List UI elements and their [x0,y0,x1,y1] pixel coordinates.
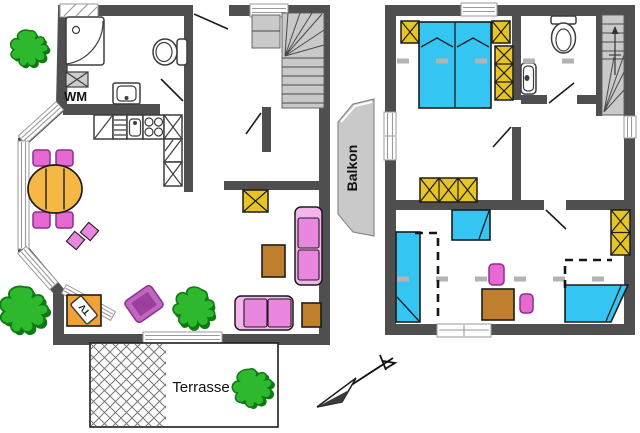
wardrobe-small [611,210,630,255]
side-table [302,303,321,327]
window-bottom-living [143,332,222,343]
wall-hall-living [224,181,325,190]
coffee-table [262,245,285,277]
wall-stairwell [596,15,602,116]
washbasin-upper [521,63,536,94]
window-top-left [60,4,98,17]
stool [489,264,504,285]
toilet-upper [551,16,576,53]
plant [11,30,51,68]
wall-hall-stub [262,107,271,152]
cot [452,210,490,240]
terrace-hatch [91,344,166,426]
north-arrow [317,355,395,407]
table-upper [482,289,514,320]
stool [520,294,533,313]
ground-floor-plan: WM [18,4,330,345]
dining-chair [33,150,50,166]
plant [0,286,51,335]
wall-mid-right [566,200,624,210]
staircase-upper [602,15,624,115]
floorplan-image: WM [0,0,640,433]
kitchen-sink [127,115,143,139]
upper-floor-plan [384,3,636,337]
dining-chair [33,212,50,228]
corner-shower [66,17,104,65]
window-right-upper [624,116,636,138]
sofa-horizontal [235,296,293,330]
washing-machine-label: WM [64,89,87,104]
wall-bath-bottom [63,104,160,115]
stove [143,115,164,139]
nightstand-right [492,21,510,43]
bay-window-left [18,141,29,249]
tv-stand: TV [67,295,101,326]
balcony-door [384,112,396,160]
dining-chair [56,150,73,166]
wall-bedroom-lower [512,127,521,200]
sofa-vertical [295,207,322,285]
dining-chair [56,212,73,228]
wardrobe-wide [420,178,477,202]
window-top-upper [461,3,497,16]
bathroom-sink [113,83,140,104]
wall-bath-left [521,95,547,104]
floorplan-svg: WM [0,0,640,433]
toilet [153,39,187,65]
double-bed [419,22,491,108]
wardrobe-tall [495,46,513,100]
cabinet [243,190,268,212]
balcony: Balkon [338,99,374,236]
terrace-label: Terrasse [172,379,230,396]
dining-table [28,165,82,213]
balcony-label: Balkon [344,145,360,192]
nightstand-left [401,21,419,43]
window-bottom-upper [437,324,491,337]
